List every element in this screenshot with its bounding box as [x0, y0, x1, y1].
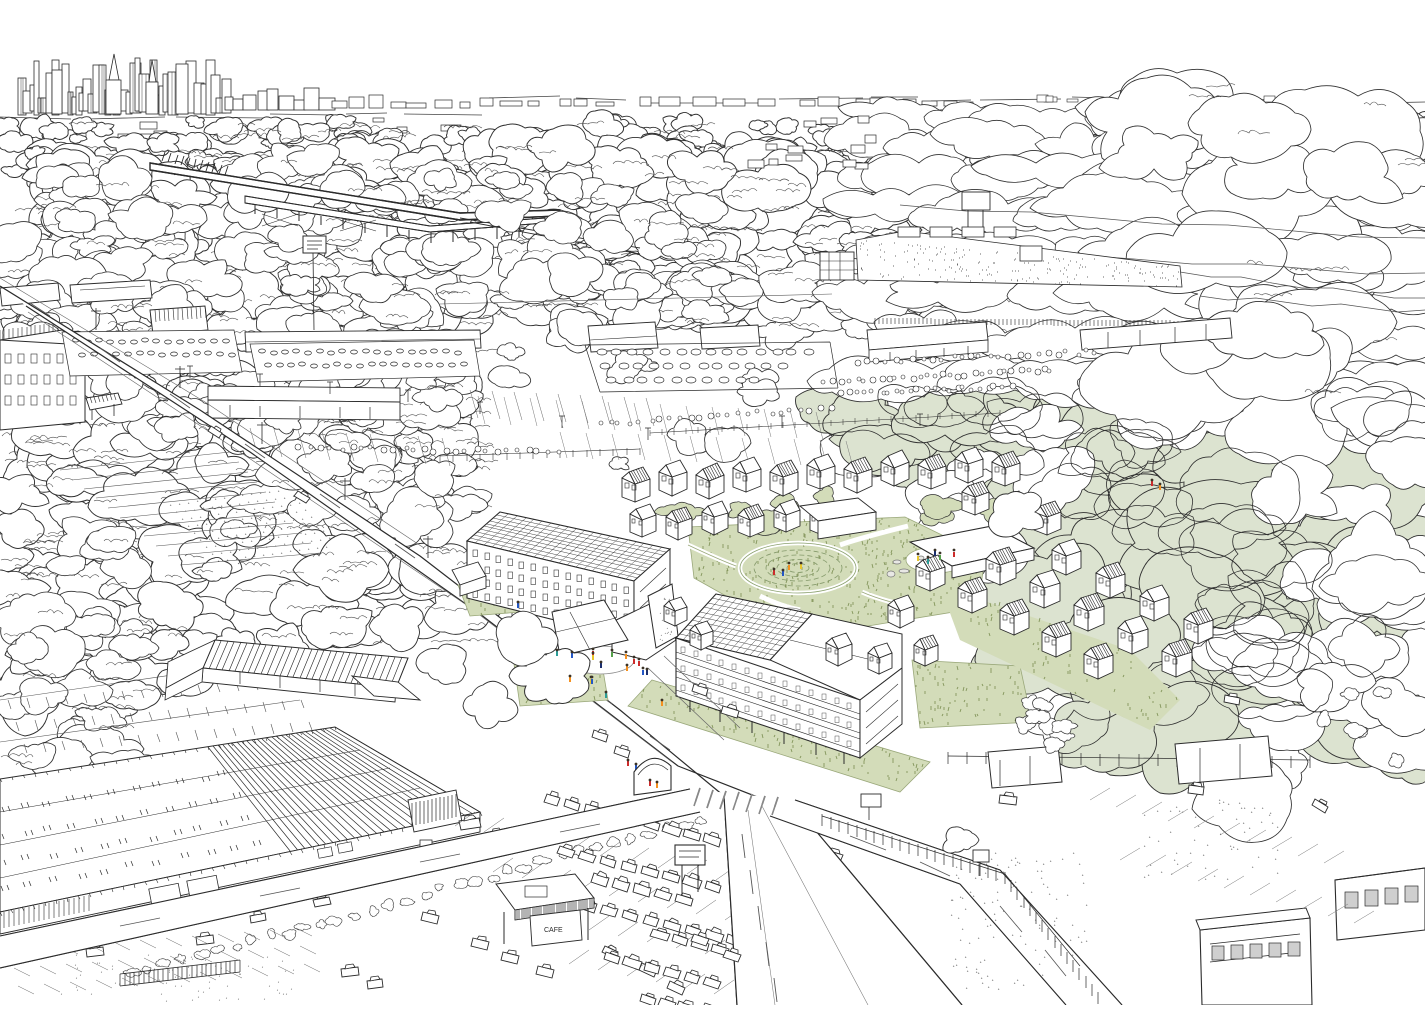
svg-text:CAFE: CAFE	[544, 927, 563, 934]
